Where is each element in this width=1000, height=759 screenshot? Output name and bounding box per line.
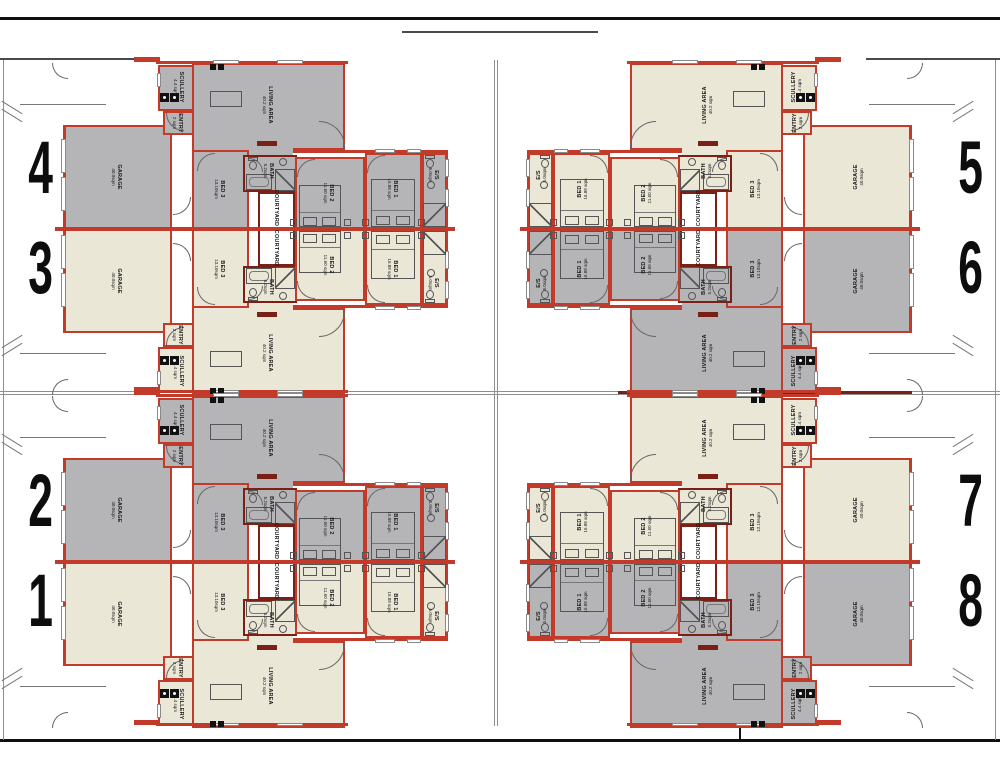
garage-door-opening xyxy=(61,139,66,173)
exterior-wall xyxy=(527,305,682,308)
garage-door-opening xyxy=(909,139,914,173)
pillow xyxy=(658,217,672,226)
window xyxy=(580,639,600,643)
sink-icon xyxy=(759,721,765,727)
shower-icon xyxy=(423,203,446,227)
appliance-icon xyxy=(806,689,815,698)
window xyxy=(814,704,818,718)
window xyxy=(375,639,395,643)
entry-path-arc xyxy=(52,396,68,412)
door-swing-arc xyxy=(784,243,802,261)
window xyxy=(407,306,421,310)
basin-icon xyxy=(688,491,696,499)
window xyxy=(157,371,161,385)
toilet-icon xyxy=(249,494,257,503)
toilet-icon xyxy=(541,290,549,299)
shower-icon xyxy=(423,536,446,560)
kerb-diagonal xyxy=(953,668,974,682)
pedestal xyxy=(344,232,351,239)
kerb-line xyxy=(20,437,106,438)
exterior-wall xyxy=(627,61,819,64)
appliance-icon xyxy=(796,426,805,435)
garage-door-opening xyxy=(909,235,914,269)
window xyxy=(554,482,568,486)
garage-door-opening xyxy=(909,273,914,307)
bathtub-icon xyxy=(246,174,272,190)
door-swing-arc xyxy=(784,197,802,215)
pillow xyxy=(376,549,390,558)
garage-door-opening xyxy=(61,177,66,211)
bed-icon xyxy=(299,518,341,560)
site-divider-vertical xyxy=(494,60,498,726)
shower-icon xyxy=(680,169,700,191)
kitchen-island xyxy=(733,424,765,440)
appliance-icon xyxy=(806,93,815,102)
entry-path-arc xyxy=(52,712,68,728)
pillow xyxy=(639,567,653,576)
window xyxy=(213,60,239,64)
kerb-diagonal xyxy=(953,335,974,349)
kitchen-island xyxy=(210,684,242,700)
appliance-icon xyxy=(160,426,169,435)
sink-icon xyxy=(751,721,757,727)
window xyxy=(580,149,600,153)
window xyxy=(407,149,421,153)
pillow xyxy=(658,234,672,243)
pedestal xyxy=(290,219,297,226)
bathtub-icon xyxy=(703,268,729,284)
toilet-icon xyxy=(541,159,549,168)
window xyxy=(157,73,161,87)
pedestal xyxy=(624,232,631,239)
pillow xyxy=(376,568,390,577)
unit-number: 4 xyxy=(28,131,53,205)
window xyxy=(526,281,530,299)
exterior-wall xyxy=(293,305,448,308)
window xyxy=(157,406,161,420)
kerb-diagonal xyxy=(2,101,23,115)
pedestal xyxy=(290,552,297,559)
exterior-wall xyxy=(527,483,682,486)
toilet-icon xyxy=(718,494,726,503)
door-swing-arc xyxy=(173,197,191,215)
kerb-diagonal xyxy=(2,668,23,682)
block-bottom-left: GARAGE40.0sqm SCULLERY4.4 sqm ENTRY2 sqm… xyxy=(63,390,448,725)
room-garage xyxy=(803,229,912,333)
window xyxy=(814,73,818,87)
sink-icon xyxy=(210,64,216,70)
shower-icon xyxy=(680,600,700,622)
exterior-wall xyxy=(293,150,448,153)
kerb-line xyxy=(869,437,955,438)
garage-door-opening xyxy=(909,606,914,640)
sink-icon xyxy=(759,64,765,70)
bed-icon xyxy=(560,179,604,227)
pillow xyxy=(565,549,579,558)
garage-door-opening xyxy=(61,472,66,506)
pillow xyxy=(396,549,410,558)
garage-door-opening xyxy=(909,568,914,602)
garage-door-opening xyxy=(909,472,914,506)
room-garage xyxy=(803,562,912,666)
window xyxy=(375,149,395,153)
pedestal xyxy=(624,219,631,226)
pedestal xyxy=(606,552,613,559)
site-boundary-left xyxy=(3,58,4,740)
pillow xyxy=(396,568,410,577)
pedestal xyxy=(290,565,297,572)
unit-number: 1 xyxy=(28,564,53,638)
bed-icon xyxy=(560,512,604,560)
basin-icon xyxy=(279,491,287,499)
pillow xyxy=(322,550,336,559)
pillow xyxy=(303,550,317,559)
toilet-icon xyxy=(541,492,549,501)
bed-icon xyxy=(634,518,676,560)
window xyxy=(554,639,568,643)
toilet-icon xyxy=(425,632,435,636)
window xyxy=(277,723,303,726)
pillow xyxy=(322,567,336,576)
unit-number: 6 xyxy=(958,231,983,305)
kerb-line xyxy=(869,686,955,687)
exterior-wall xyxy=(293,638,448,641)
pillow xyxy=(585,216,599,225)
pillow xyxy=(658,550,672,559)
kerb-diagonal xyxy=(2,434,23,448)
window xyxy=(526,159,530,177)
sink-icon xyxy=(751,397,757,403)
exterior-wall xyxy=(156,61,348,64)
appliance-icon xyxy=(796,689,805,698)
bed-icon xyxy=(560,231,604,279)
bathtub-icon xyxy=(703,601,729,617)
appliance-icon xyxy=(160,93,169,102)
garage-door-opening xyxy=(61,235,66,269)
pillow xyxy=(376,235,390,244)
window xyxy=(580,482,600,486)
toilet-icon xyxy=(426,159,434,168)
basin-icon xyxy=(688,158,696,166)
kerb-diagonal xyxy=(953,434,974,448)
pillow xyxy=(396,235,410,244)
unit-number: 7 xyxy=(958,464,983,538)
bathtub-icon xyxy=(246,507,272,523)
garage-door-opening xyxy=(909,177,914,211)
fireplace-icon xyxy=(698,141,718,146)
fireplace-icon xyxy=(698,474,718,479)
basin-icon xyxy=(279,625,287,633)
window xyxy=(407,639,421,643)
kitchen-island xyxy=(733,684,765,700)
door-swing-arc xyxy=(173,530,191,548)
basin-icon xyxy=(540,602,548,610)
sink-icon xyxy=(751,64,757,70)
basin-icon xyxy=(427,514,435,522)
sink-icon xyxy=(210,397,216,403)
shower-icon xyxy=(423,231,446,255)
pedestal xyxy=(362,552,369,559)
window xyxy=(526,614,530,632)
pillow xyxy=(639,217,653,226)
bed-icon xyxy=(371,179,415,227)
pillow xyxy=(303,217,317,226)
pedestal xyxy=(344,552,351,559)
kerb-line xyxy=(20,353,106,354)
pillow xyxy=(585,549,599,558)
kerb-line xyxy=(20,104,106,105)
window xyxy=(445,492,449,510)
basin-icon xyxy=(688,625,696,633)
room-garage xyxy=(63,229,172,333)
appliance-icon xyxy=(796,93,805,102)
window xyxy=(814,371,818,385)
bathtub-icon xyxy=(703,174,729,190)
site-boundary-bottom xyxy=(0,739,1000,742)
exterior-wall xyxy=(156,723,348,726)
window xyxy=(672,393,698,397)
window xyxy=(554,306,568,310)
garage-door-opening xyxy=(61,568,66,602)
appliance-icon xyxy=(170,426,179,435)
entry-path-arc xyxy=(907,396,923,412)
room-garage xyxy=(803,458,912,562)
shower-icon xyxy=(275,267,295,289)
toilet-icon xyxy=(426,290,434,299)
window xyxy=(672,60,698,64)
window xyxy=(277,393,303,397)
kerb-line xyxy=(869,104,955,105)
bed-icon xyxy=(560,564,604,612)
appliance-icon xyxy=(806,426,815,435)
sink-icon xyxy=(218,397,224,403)
toilet-icon xyxy=(718,288,726,297)
pillow xyxy=(322,217,336,226)
sink-icon xyxy=(218,64,224,70)
pedestal xyxy=(344,219,351,226)
kerb-line xyxy=(20,686,106,687)
window xyxy=(445,281,449,299)
bed-icon xyxy=(371,231,415,279)
pedestal xyxy=(290,232,297,239)
fireplace-icon xyxy=(698,645,718,650)
room-garage xyxy=(803,125,912,229)
shower-icon xyxy=(275,169,295,191)
kitchen-island xyxy=(210,351,242,367)
bathtub-icon xyxy=(246,268,272,284)
exterior-wall xyxy=(156,394,348,397)
basin-icon xyxy=(427,602,435,610)
shower-icon xyxy=(680,502,700,524)
fireplace-icon xyxy=(698,312,718,317)
fireplace-icon xyxy=(257,645,277,650)
pillow xyxy=(565,568,579,577)
bed-icon xyxy=(299,185,341,227)
basin-icon xyxy=(279,292,287,300)
bed-icon xyxy=(371,564,415,612)
pillow xyxy=(303,567,317,576)
pillow xyxy=(396,216,410,225)
basin-icon xyxy=(688,292,696,300)
window xyxy=(580,306,600,310)
appliance-icon xyxy=(170,93,179,102)
pedestal xyxy=(606,232,613,239)
pillow xyxy=(565,216,579,225)
window xyxy=(157,704,161,718)
bed-icon xyxy=(371,512,415,560)
toilet-icon xyxy=(717,297,727,301)
appliance-icon xyxy=(796,356,805,365)
kerb-line xyxy=(869,353,955,354)
shower-icon xyxy=(423,564,446,588)
window xyxy=(672,723,698,726)
kerb-diagonal xyxy=(2,335,23,349)
exterior-wall xyxy=(527,150,682,153)
exterior-wall xyxy=(627,723,819,726)
pillow xyxy=(658,567,672,576)
exterior-wall xyxy=(527,638,682,641)
pedestal xyxy=(678,232,685,239)
room-garage xyxy=(63,125,172,229)
appliance-icon xyxy=(160,356,169,365)
unit-number: 5 xyxy=(958,131,983,205)
toilet-icon xyxy=(248,630,258,634)
toilet-icon xyxy=(426,623,434,632)
basin-icon xyxy=(427,181,435,189)
pillow xyxy=(303,234,317,243)
basin-icon xyxy=(540,514,548,522)
block-bottom-right: GARAGE40.0sqm SCULLERY4.4 sqm ENTRY2 sqm… xyxy=(527,390,912,725)
garage-door-opening xyxy=(61,606,66,640)
door-swing-arc xyxy=(784,530,802,548)
pedestal xyxy=(624,552,631,559)
exterior-wall xyxy=(627,394,819,397)
fireplace-icon xyxy=(257,312,277,317)
door-swing-arc xyxy=(784,576,802,594)
toilet-icon xyxy=(717,630,727,634)
sink-icon xyxy=(218,721,224,727)
bed-icon xyxy=(634,231,676,273)
bathtub-icon xyxy=(246,601,272,617)
exterior-wall xyxy=(293,483,448,486)
window xyxy=(375,306,395,310)
window xyxy=(277,60,303,64)
window xyxy=(213,393,239,397)
pillow xyxy=(322,234,336,243)
pedestal xyxy=(606,219,613,226)
shower-icon xyxy=(529,203,552,227)
entry-path-arc xyxy=(907,712,923,728)
toilet-icon xyxy=(426,492,434,501)
toilet-icon xyxy=(718,161,726,170)
toilet-icon xyxy=(249,621,257,630)
door-swing-arc xyxy=(173,243,191,261)
pillow xyxy=(639,550,653,559)
kerb-line-top-middle xyxy=(402,31,598,33)
window xyxy=(526,492,530,510)
toilet-icon xyxy=(540,632,550,636)
shower-icon xyxy=(529,231,552,255)
basin-icon xyxy=(540,269,548,277)
basin-icon xyxy=(540,181,548,189)
window xyxy=(375,482,395,486)
toilet-icon xyxy=(541,623,549,632)
pedestal xyxy=(624,565,631,572)
bed-icon xyxy=(299,231,341,273)
pedestal xyxy=(362,219,369,226)
toilet-icon xyxy=(249,161,257,170)
pillow xyxy=(585,568,599,577)
bed-icon xyxy=(299,564,341,606)
shower-icon xyxy=(275,600,295,622)
shower-icon xyxy=(529,564,552,588)
floor-plan-canvas: GARAGE40.0sqm SCULLERY4.4 sqm ENTRY2 sqm… xyxy=(0,0,1000,759)
appliance-icon xyxy=(160,689,169,698)
pillow xyxy=(565,235,579,244)
block-top-right: GARAGE40.0sqm SCULLERY4.4 sqm ENTRY2 sqm… xyxy=(527,57,912,392)
unit-number: 8 xyxy=(958,564,983,638)
toilet-icon xyxy=(249,288,257,297)
appliance-icon xyxy=(806,356,815,365)
bathtub-icon xyxy=(703,507,729,523)
shower-icon xyxy=(275,502,295,524)
basin-icon xyxy=(279,158,287,166)
kitchen-island xyxy=(733,91,765,107)
sink-icon xyxy=(210,721,216,727)
toilet-icon xyxy=(248,297,258,301)
garage-door-opening xyxy=(909,510,914,544)
window xyxy=(554,149,568,153)
kitchen-island xyxy=(733,351,765,367)
appliance-icon xyxy=(170,689,179,698)
appliance-icon xyxy=(170,356,179,365)
site-boundary-right xyxy=(995,58,996,740)
bed-icon xyxy=(634,564,676,606)
pedestal xyxy=(362,565,369,572)
toilet-icon xyxy=(718,621,726,630)
shower-icon xyxy=(529,536,552,560)
unit-number: 3 xyxy=(28,231,53,305)
sink-icon xyxy=(759,397,765,403)
unit-number: 2 xyxy=(28,464,53,538)
toilet-icon xyxy=(425,299,435,303)
basin-icon xyxy=(427,269,435,277)
fireplace-icon xyxy=(257,474,277,479)
pillow xyxy=(585,235,599,244)
entry-path-arc xyxy=(52,63,68,79)
shower-icon xyxy=(680,267,700,289)
site-boundary-top xyxy=(0,17,1000,20)
fireplace-icon xyxy=(257,141,277,146)
garage-door-opening xyxy=(61,510,66,544)
pedestal xyxy=(678,552,685,559)
block-top-left: GARAGE40.0sqm SCULLERY4.4 sqm ENTRY2 sqm… xyxy=(63,57,448,392)
pillow xyxy=(376,216,390,225)
pillow xyxy=(639,234,653,243)
pedestal xyxy=(344,565,351,572)
pedestal xyxy=(362,232,369,239)
window xyxy=(213,723,239,726)
bed-icon xyxy=(634,185,676,227)
window xyxy=(814,406,818,420)
pedestal xyxy=(678,219,685,226)
garage-door-opening xyxy=(61,273,66,307)
window xyxy=(407,482,421,486)
entry-path-arc xyxy=(907,63,923,79)
toilet-icon xyxy=(540,299,550,303)
room-garage xyxy=(63,458,172,562)
pedestal xyxy=(606,565,613,572)
